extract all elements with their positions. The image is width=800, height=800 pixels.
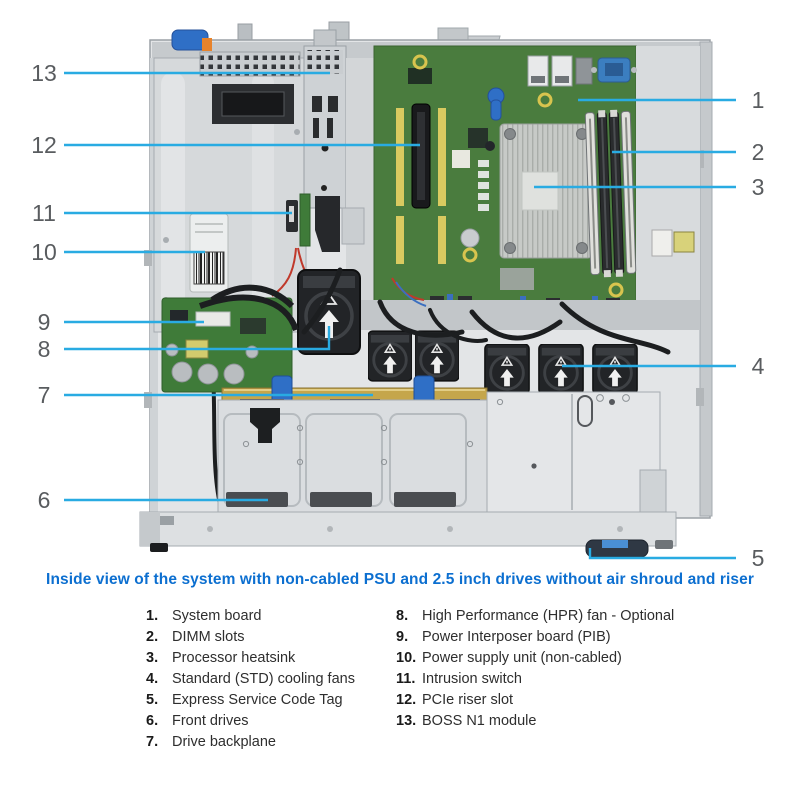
- mesh-chip: [500, 268, 534, 290]
- std-fan: [539, 344, 583, 394]
- legend-item-8: 8.High Performance (HPR) fan - Optional: [396, 606, 736, 627]
- legend-item-1: 1.System board: [146, 606, 396, 627]
- legend-item-6: 6.Front drives: [146, 711, 396, 732]
- legend-item-10: 10.Power supply unit (non-cabled): [396, 648, 736, 669]
- callout-4: 4: [752, 353, 765, 379]
- figure-caption: Inside view of the system with non-cable…: [0, 571, 800, 589]
- callout-2: 2: [752, 139, 765, 165]
- legend-item-13: 13.BOSS N1 module: [396, 711, 736, 732]
- drive-slot: [310, 492, 372, 507]
- capacitor: [224, 364, 244, 384]
- std-fan: [368, 331, 412, 381]
- capacitor: [198, 364, 218, 384]
- drive-slot: [394, 492, 456, 507]
- fan-wall: [360, 300, 700, 330]
- vga-connector: [591, 58, 637, 82]
- capacitor: [172, 362, 192, 382]
- processor-heatsink: [500, 124, 592, 258]
- front-panel: [140, 512, 676, 557]
- callout-9: 9: [38, 309, 51, 335]
- chassis-right-edge: [700, 42, 712, 516]
- server-inside-figure: 1 2 3 4 5 6 7 8 9 10 11 12 13: [0, 0, 800, 570]
- callout-7: 7: [38, 382, 51, 408]
- legend-item-7: 7.Drive backplane: [146, 732, 396, 753]
- boss-n1-module: [304, 30, 346, 208]
- coin-battery: [461, 229, 479, 247]
- callout-6: 6: [38, 487, 51, 513]
- legend-item-11: 11.Intrusion switch: [396, 669, 736, 690]
- legend-item-12: 12.PCIe riser slot: [396, 690, 736, 711]
- std-fan: [485, 344, 529, 394]
- front-drives: [218, 400, 487, 512]
- psu-release-latch: [172, 30, 212, 51]
- legend-column-right: 8.High Performance (HPR) fan - Optional …: [396, 606, 736, 732]
- boss-vent-grid: [307, 50, 343, 74]
- callout-1: 1: [752, 87, 765, 113]
- legend-item-9: 9.Power Interposer board (PIB): [396, 627, 736, 648]
- callout-11: 11: [32, 200, 56, 226]
- legend-item-5: 5.Express Service Code Tag: [146, 690, 396, 711]
- callout-10: 10: [31, 239, 57, 265]
- callout-5: 5: [752, 545, 765, 570]
- callout-13: 13: [31, 60, 57, 86]
- page: 1 2 3 4 5 6 7 8 9 10 11 12 13 Inside vie…: [0, 0, 800, 800]
- legend-item-2: 2.DIMM slots: [146, 627, 396, 648]
- legend-item-4: 4.Standard (STD) cooling fans: [146, 669, 396, 690]
- legend-item-3: 3.Processor heatsink: [146, 648, 396, 669]
- legend-column-left: 1.System board 2.DIMM slots 3.Processor …: [146, 606, 396, 753]
- std-fan: [415, 331, 459, 381]
- right-drive-bay: [487, 392, 666, 512]
- usb-port: [576, 58, 592, 84]
- callout-8: 8: [38, 336, 51, 362]
- callout-12: 12: [31, 132, 57, 158]
- express-service-code-tag: [586, 540, 648, 557]
- callout-3: 3: [752, 174, 765, 200]
- std-fan: [593, 344, 637, 394]
